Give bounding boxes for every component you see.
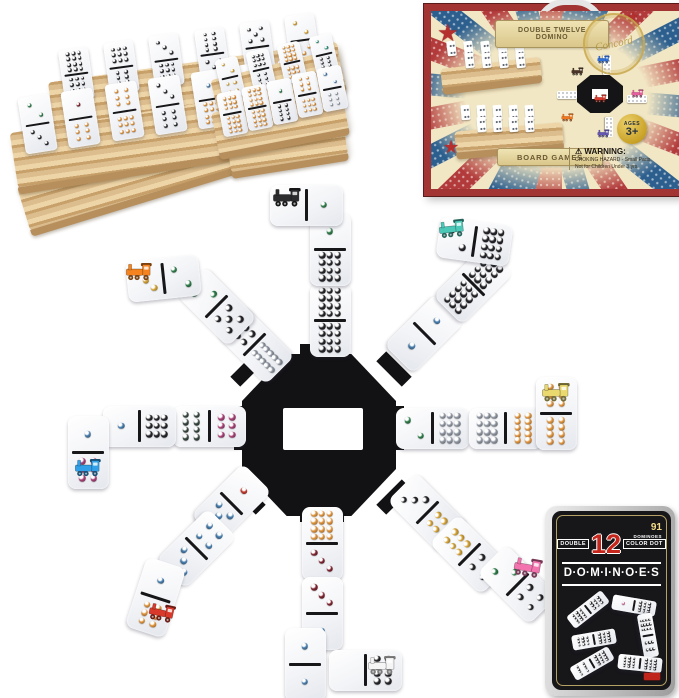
pip	[118, 53, 122, 57]
pip	[648, 618, 651, 621]
pip	[264, 77, 268, 81]
pip	[258, 96, 262, 100]
pip	[547, 431, 554, 438]
pip	[258, 26, 262, 30]
domino-divider	[540, 412, 572, 415]
pip	[319, 533, 326, 540]
pip	[302, 104, 306, 108]
pip	[257, 74, 261, 78]
pip	[225, 82, 229, 86]
pip	[334, 91, 338, 95]
pip	[640, 624, 643, 627]
pip	[193, 419, 200, 426]
pip	[156, 84, 161, 89]
tin-colordot-label: COLOR DOT	[623, 539, 666, 549]
pip	[639, 603, 642, 606]
box-mini-pip	[467, 45, 469, 47]
train-icon	[74, 458, 102, 477]
w-train-token	[74, 458, 102, 477]
pip	[484, 429, 491, 436]
pip	[117, 118, 122, 123]
warning-line2: Not for Children Under 3 yrs.	[575, 164, 669, 170]
pip	[624, 656, 627, 659]
pip	[477, 429, 484, 436]
pip	[514, 437, 521, 444]
pip	[117, 76, 121, 80]
pip	[333, 79, 337, 83]
pip	[608, 639, 611, 642]
pip	[327, 252, 334, 259]
pip	[209, 101, 214, 106]
pip	[76, 101, 81, 106]
train-icon	[367, 655, 397, 675]
pip	[308, 108, 312, 112]
pip	[124, 57, 128, 61]
pip	[79, 67, 83, 71]
box-mini-pip	[505, 57, 507, 59]
domino-half	[288, 630, 322, 663]
pip	[116, 102, 121, 107]
pip	[124, 70, 128, 74]
domino-divider	[72, 451, 104, 454]
tin-domino	[637, 612, 659, 658]
pip	[494, 253, 501, 260]
pip	[319, 592, 326, 599]
pip	[258, 78, 262, 82]
pip	[399, 495, 408, 504]
pip	[235, 114, 239, 118]
pip	[251, 88, 255, 92]
domino-divider	[504, 412, 507, 444]
pip	[75, 77, 79, 81]
warning-line1: CHOKING HAZARD - Small Parts.	[575, 157, 669, 163]
pip	[624, 658, 627, 661]
domino-half	[594, 629, 616, 645]
pip	[319, 252, 326, 259]
pip	[645, 641, 648, 644]
pip	[649, 667, 652, 670]
pip	[113, 59, 117, 63]
domino-half	[105, 409, 138, 443]
pip	[251, 110, 255, 114]
box-mini-pip	[519, 64, 521, 66]
pip	[233, 80, 237, 84]
pip	[642, 619, 645, 622]
box-mini-train	[631, 85, 644, 94]
e-train-token	[541, 382, 571, 402]
pip	[327, 566, 334, 573]
pip	[214, 500, 223, 509]
domino-half	[573, 633, 595, 649]
pip	[223, 102, 227, 106]
pip	[218, 432, 225, 439]
pip	[653, 668, 656, 671]
pip	[600, 600, 604, 604]
pip	[232, 124, 236, 128]
box-mini-pip	[483, 109, 485, 111]
pip	[154, 431, 161, 438]
domino-half	[63, 89, 94, 119]
pip	[260, 37, 264, 41]
warning-icon: ⚠	[575, 147, 582, 156]
pip	[644, 667, 647, 670]
pip	[182, 427, 189, 434]
pip	[229, 432, 236, 439]
pip	[224, 303, 233, 312]
pip	[326, 510, 333, 517]
pip	[204, 42, 208, 46]
pip	[209, 289, 218, 298]
pip	[256, 113, 260, 117]
box-mini-pip	[496, 109, 498, 111]
tin-number-12: 12	[591, 533, 621, 555]
pip	[477, 421, 484, 428]
box-mini-train	[561, 109, 574, 118]
pip	[334, 323, 341, 330]
box-mini-pip	[512, 128, 514, 130]
pip	[78, 56, 82, 60]
pip	[487, 244, 494, 251]
pip	[235, 314, 244, 323]
pip	[311, 584, 318, 591]
pip	[328, 98, 332, 102]
pip	[425, 518, 434, 527]
pip	[213, 41, 217, 45]
pip	[292, 48, 296, 52]
pip	[580, 617, 584, 621]
pip	[547, 417, 554, 424]
pip	[481, 235, 488, 242]
train-icon	[272, 187, 302, 207]
pip	[646, 648, 649, 651]
pip	[257, 118, 261, 122]
pip	[301, 99, 305, 103]
tin-double-label: DOUBLE	[557, 539, 589, 549]
domino-half	[241, 21, 269, 48]
pip	[489, 236, 496, 243]
domino-half	[398, 411, 431, 445]
pip	[172, 116, 177, 121]
pip	[253, 97, 257, 101]
domino-half	[613, 595, 635, 611]
star-icon: ★	[443, 137, 459, 158]
domino-half	[313, 286, 347, 319]
pip	[491, 413, 498, 420]
tin-domino	[566, 591, 610, 628]
train-icon	[541, 382, 571, 402]
warning-block: ⚠ WARNING: CHOKING HAZARD - Small Parts.…	[569, 147, 669, 170]
pip	[80, 76, 84, 80]
pip	[404, 417, 411, 424]
pip	[582, 642, 585, 645]
pip	[334, 287, 341, 294]
pip	[248, 39, 252, 43]
domino-half	[111, 110, 142, 140]
pip	[279, 112, 283, 116]
train-domino-sw-2	[124, 556, 186, 638]
box-mini-pip	[515, 109, 517, 111]
pip	[261, 113, 265, 117]
pip	[213, 46, 217, 50]
box-front-panel: ★ ★ ★ DOUBLE TWELVE DOMINO BOARD GAMES C…	[431, 11, 679, 189]
box-mini-pip	[499, 128, 501, 130]
pip	[448, 541, 457, 550]
box-mini-pip	[528, 121, 530, 123]
pip	[598, 662, 602, 666]
pip	[319, 510, 326, 517]
pip	[123, 88, 128, 93]
box-mini-pip	[528, 109, 530, 111]
pip	[231, 120, 235, 124]
pip	[597, 603, 601, 607]
pip	[228, 101, 232, 105]
box-banner-top-line1: DOUBLE TWELVE	[518, 27, 586, 34]
domino-half	[634, 599, 656, 615]
pip	[294, 56, 298, 60]
pip	[70, 83, 74, 87]
pip	[67, 57, 71, 61]
pip	[577, 620, 581, 624]
pip	[203, 102, 208, 107]
pip	[327, 331, 334, 338]
pip	[334, 252, 341, 259]
pip	[638, 609, 641, 612]
box-mini-pip	[480, 109, 482, 111]
pip	[225, 511, 234, 520]
pip	[230, 69, 234, 73]
pip	[654, 659, 657, 662]
pip	[303, 109, 307, 113]
pip	[124, 123, 129, 128]
pip	[334, 275, 341, 282]
train-domino-e-1	[469, 408, 542, 449]
pip	[454, 413, 461, 420]
domino-half	[539, 414, 573, 447]
tin-count-number: 91	[651, 522, 662, 533]
pip	[239, 486, 248, 495]
pip	[161, 414, 168, 421]
pip	[111, 48, 115, 52]
domino-half	[24, 123, 55, 153]
pip	[237, 123, 241, 127]
pip	[586, 669, 590, 673]
pip	[649, 664, 652, 667]
domino-divider	[305, 189, 308, 221]
domino-half	[68, 117, 99, 147]
domino-half	[433, 411, 466, 445]
domino-half	[297, 94, 321, 117]
pip	[302, 51, 306, 55]
pip	[327, 287, 334, 294]
pip	[456, 533, 465, 542]
pip	[118, 124, 123, 129]
pip	[229, 105, 233, 109]
train-icon	[561, 113, 574, 122]
pip	[643, 623, 646, 626]
pip	[77, 136, 82, 141]
domino-half	[288, 665, 322, 698]
pip	[169, 51, 173, 55]
domino-half	[331, 653, 364, 687]
pip	[326, 518, 333, 525]
pip	[119, 130, 124, 135]
pip	[163, 46, 167, 50]
pip	[645, 618, 648, 621]
pip	[535, 592, 544, 601]
tin-logo-badge	[644, 673, 660, 680]
pip	[329, 103, 333, 107]
pip	[311, 550, 318, 557]
pip	[77, 51, 81, 55]
pip	[319, 526, 326, 533]
pip	[311, 98, 315, 102]
pip	[327, 323, 334, 330]
pip	[315, 40, 319, 44]
box-mini-pip	[531, 128, 533, 130]
box-mini-domino	[515, 53, 526, 69]
pip	[222, 97, 226, 101]
pip	[439, 413, 446, 420]
pip	[231, 115, 235, 119]
pip	[253, 119, 257, 123]
pip	[224, 325, 233, 334]
pip	[319, 558, 326, 565]
domino-half	[640, 657, 661, 672]
pip	[326, 526, 333, 533]
pip	[417, 432, 424, 439]
domino-divider	[431, 412, 434, 444]
pip	[632, 662, 635, 665]
pip	[525, 582, 534, 591]
pip	[84, 122, 89, 127]
pip	[410, 495, 419, 504]
pip	[484, 437, 491, 444]
pip	[334, 260, 341, 267]
pip	[433, 510, 442, 519]
train-icon	[594, 94, 607, 103]
pip	[205, 47, 209, 51]
pip	[649, 647, 652, 650]
pip	[454, 547, 463, 556]
pip	[292, 70, 296, 74]
pip	[85, 431, 92, 438]
warning-title-text: WARNING:	[584, 147, 625, 156]
warning-title: ⚠ WARNING:	[575, 147, 669, 156]
pip	[495, 245, 502, 252]
box-mini-pip	[531, 121, 533, 123]
pip	[171, 68, 175, 72]
pip	[307, 86, 311, 90]
pip	[218, 414, 225, 421]
pip	[287, 115, 291, 119]
pip	[646, 623, 649, 626]
pip	[648, 605, 651, 608]
pip	[484, 413, 491, 420]
tin-rule-bottom	[562, 584, 661, 586]
pip	[247, 89, 251, 93]
pip	[515, 592, 524, 601]
pip	[652, 647, 655, 650]
pip	[161, 423, 168, 430]
pip	[248, 93, 252, 97]
domino-half	[619, 655, 640, 670]
pip	[327, 346, 334, 353]
pip	[150, 284, 157, 291]
pip	[227, 96, 231, 100]
pip	[163, 89, 168, 94]
box-mini-domino	[508, 117, 518, 133]
pip	[212, 36, 216, 40]
pip	[221, 63, 225, 67]
domino-half	[305, 579, 339, 612]
pip	[204, 108, 209, 113]
pip	[319, 268, 326, 275]
pip	[632, 659, 635, 662]
pip	[154, 423, 161, 430]
pip	[247, 28, 251, 32]
domino-half	[305, 544, 339, 577]
domino-half	[163, 257, 199, 295]
pip	[171, 109, 176, 114]
pip	[327, 228, 334, 235]
pip	[227, 121, 231, 125]
box-mini-pip	[485, 64, 487, 66]
train-domino-e-0	[396, 408, 469, 449]
domino-half	[71, 418, 105, 451]
pip	[300, 88, 304, 92]
pip	[319, 339, 326, 346]
pip	[71, 51, 75, 55]
pip	[491, 429, 498, 436]
pip	[645, 661, 648, 664]
pip	[224, 106, 228, 110]
pip	[206, 120, 211, 125]
pip	[226, 116, 230, 120]
box-mini-domino	[557, 91, 577, 99]
pip	[85, 128, 90, 133]
pip	[236, 119, 240, 123]
pip	[327, 260, 334, 267]
pip	[326, 533, 333, 540]
box-mini-pip	[467, 116, 469, 118]
pip	[193, 427, 200, 434]
pip	[296, 65, 300, 69]
pip	[323, 72, 327, 76]
pip	[239, 337, 248, 346]
domino-half	[140, 409, 173, 443]
pip	[319, 303, 326, 310]
train-icon	[597, 129, 610, 138]
pip	[587, 642, 590, 645]
pip	[319, 260, 326, 267]
train-domino-s-2	[285, 628, 326, 698]
pip	[628, 662, 631, 665]
pip	[278, 88, 282, 92]
pip	[648, 641, 651, 644]
pip	[156, 41, 160, 45]
pip	[335, 96, 339, 100]
pip	[334, 295, 341, 302]
domino-half	[60, 48, 88, 75]
pip	[640, 619, 643, 622]
tin-domino	[571, 628, 617, 650]
box-mini-pip	[512, 121, 514, 123]
pip	[327, 303, 334, 310]
pip	[179, 556, 188, 565]
pip	[146, 423, 153, 430]
pip	[124, 94, 129, 99]
dominoes-product-photo: ★ ★ ★ DOUBLE TWELVE DOMINO BOARD GAMES C…	[0, 0, 679, 698]
